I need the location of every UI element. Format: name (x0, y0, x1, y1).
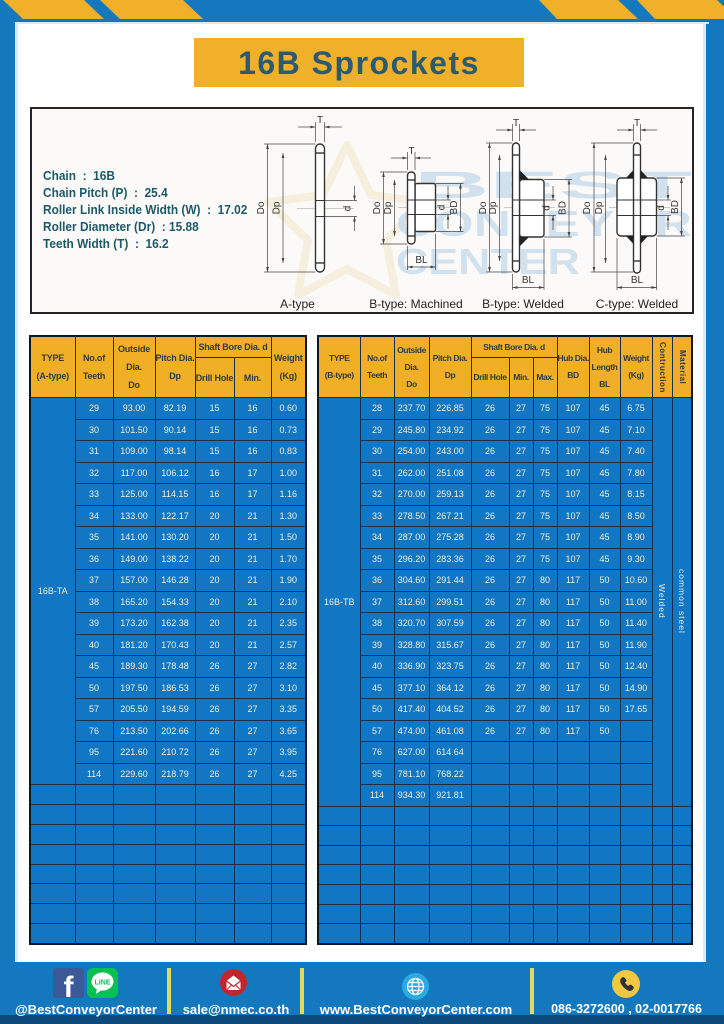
svg-text:Dp: Dp (488, 201, 499, 214)
svg-text:BD: BD (670, 200, 681, 214)
svg-text:Dp: Dp (594, 201, 605, 214)
svg-text:Dp: Dp (383, 201, 394, 214)
svg-text:Do: Do (256, 201, 267, 214)
svg-text:BD: BD (449, 201, 460, 215)
svg-text:BD: BD (558, 201, 569, 215)
svg-text:Roller Diameter (Dr) : 15.88: Roller Diameter (Dr) : 15.88 (43, 220, 199, 234)
svg-text:d: d (542, 205, 553, 211)
svg-text:BL: BL (522, 275, 535, 286)
svg-text:T: T (513, 118, 519, 129)
svg-text:C-type: Welded: C-type: Welded (596, 297, 678, 311)
svg-text:B-type: Machined: B-type: Machined (369, 297, 462, 311)
svg-text:d: d (656, 205, 667, 211)
svg-text:T: T (317, 115, 323, 126)
svg-text:LINE: LINE (95, 980, 111, 987)
svg-text:Roller Link Inside Width (W): Roller Link Inside Width (W) : 17.02 (43, 203, 248, 217)
svg-text:T: T (634, 118, 640, 129)
svg-text:B-type: Welded: B-type: Welded (482, 297, 564, 311)
svg-text:T: T (408, 146, 414, 157)
svg-text:Do: Do (582, 201, 593, 214)
svg-text:A-type: A-type (280, 297, 315, 311)
svg-text:Dp: Dp (272, 201, 283, 214)
svg-text:Teeth Width (T) : 16.2: Teeth Width (T) : 16.2 (43, 237, 169, 251)
svg-text:BL: BL (631, 275, 644, 286)
svg-text:BL: BL (415, 255, 428, 266)
svg-text:Do: Do (372, 201, 383, 214)
svg-text:d: d (437, 205, 448, 211)
svg-text:Chain Pitch (P) : 25.4: Chain Pitch (P) : 25.4 (43, 186, 168, 200)
svg-text:d: d (343, 206, 354, 212)
svg-text:Chain : 16B: Chain : 16B (43, 169, 115, 183)
